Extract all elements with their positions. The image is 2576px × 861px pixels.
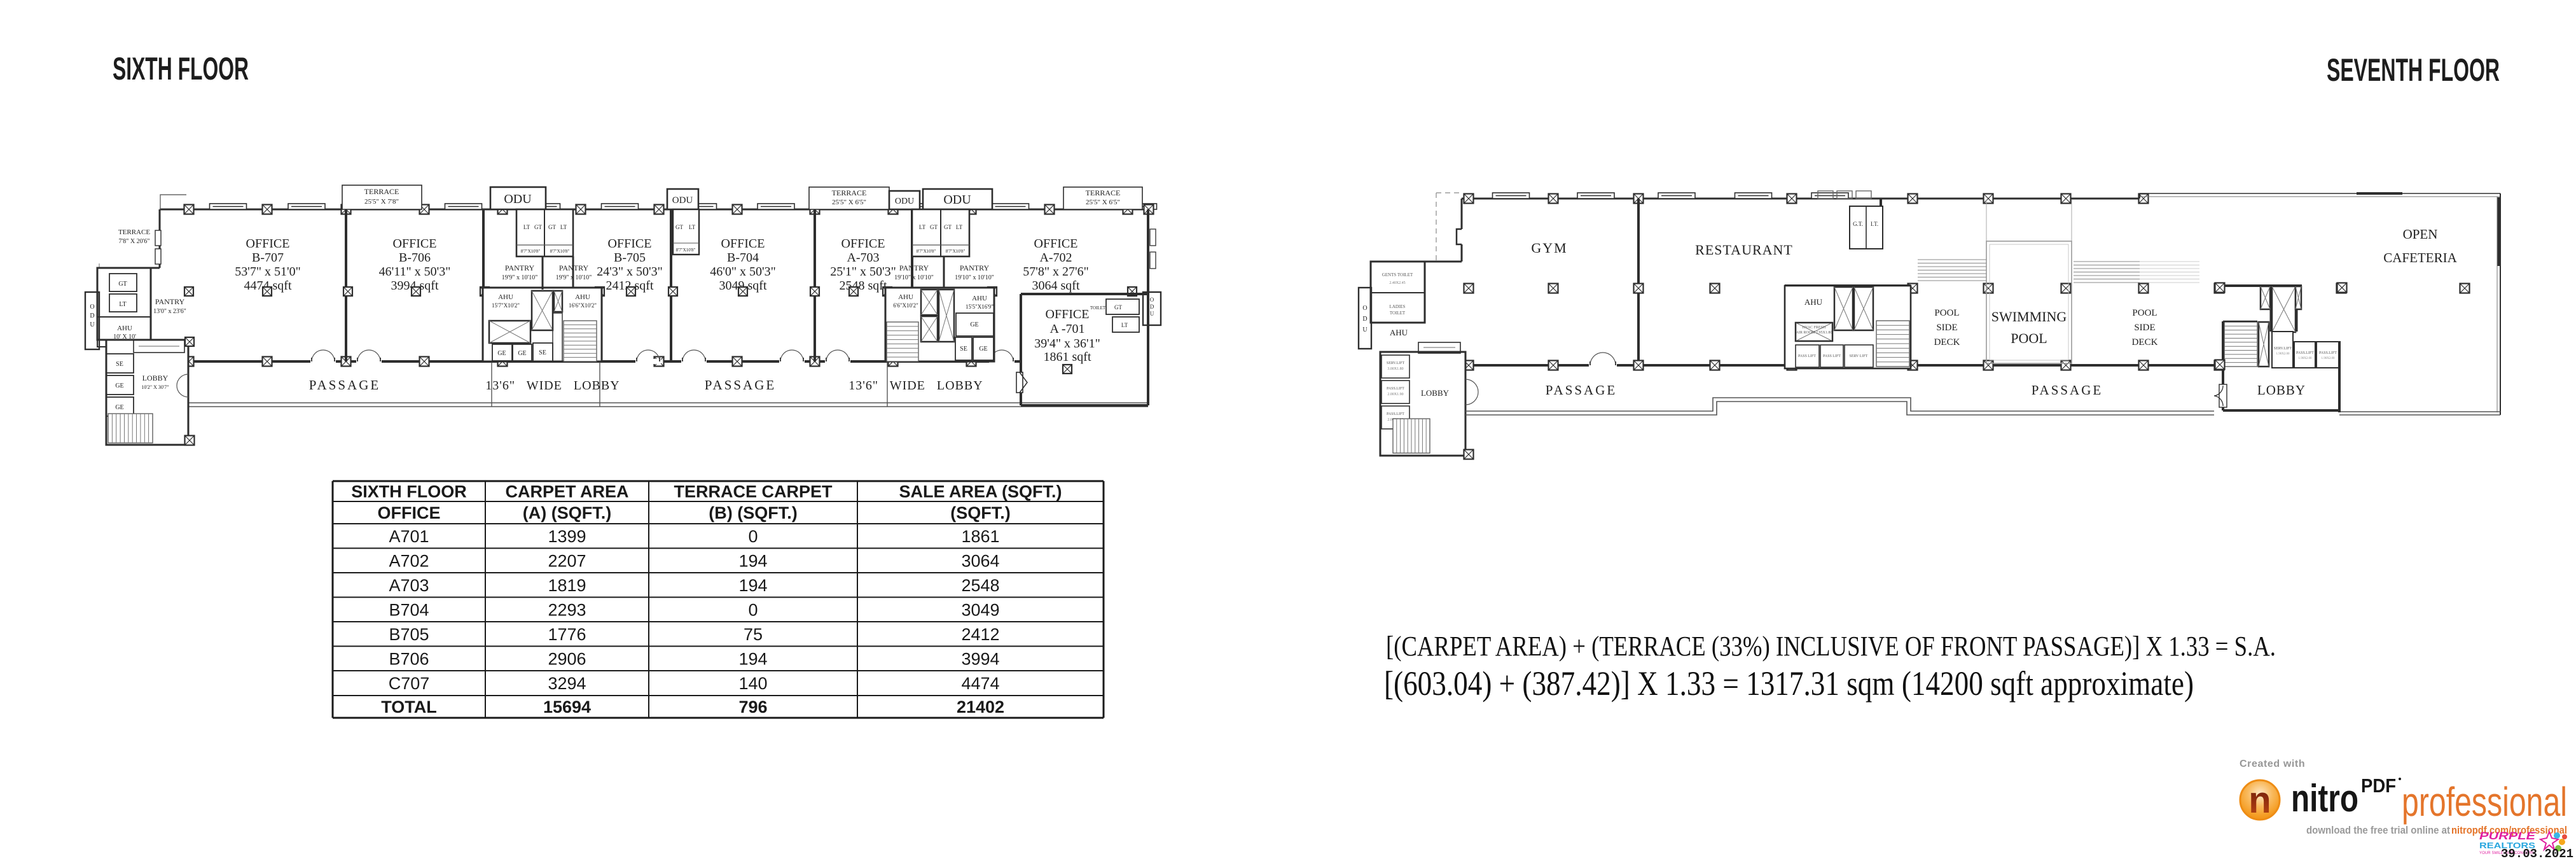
svg-text:LT: LT bbox=[1121, 322, 1128, 328]
svg-text:194: 194 bbox=[738, 576, 767, 595]
svg-text:B-707: B-707 bbox=[252, 251, 284, 265]
svg-text:GE: GE bbox=[979, 346, 987, 353]
svg-text:download the free trial online: download the free trial online at bbox=[2306, 824, 2450, 836]
svg-text:19'9" x 10'10": 19'9" x 10'10" bbox=[556, 274, 592, 281]
svg-text:B-704: B-704 bbox=[727, 251, 759, 265]
svg-text:21402: 21402 bbox=[957, 697, 1004, 717]
svg-text:SERV.LIFT: SERV.LIFT bbox=[1387, 361, 1405, 365]
svg-text:GT: GT bbox=[1114, 304, 1122, 311]
svg-text:AHU: AHU bbox=[898, 293, 913, 301]
svg-text:4474: 4474 bbox=[961, 674, 999, 693]
svg-text:D: D bbox=[1362, 316, 1367, 323]
svg-text:57'8" x 27'6": 57'8" x 27'6" bbox=[1023, 265, 1089, 279]
svg-text:SIDE: SIDE bbox=[2134, 323, 2155, 333]
svg-text:SIDE: SIDE bbox=[1936, 323, 1957, 333]
svg-text:15'5"X16'9": 15'5"X16'9" bbox=[966, 304, 994, 310]
svg-text:CAFETERIA: CAFETERIA bbox=[2383, 250, 2457, 265]
svg-text:POOL: POOL bbox=[2132, 308, 2157, 318]
svg-text:2548: 2548 bbox=[961, 576, 999, 595]
svg-text:SWIMMING: SWIMMING bbox=[1991, 309, 2067, 325]
svg-text:GT: GT bbox=[930, 224, 938, 230]
svg-text:TERRACE: TERRACE bbox=[1086, 188, 1121, 197]
svg-text:RESTAURANT: RESTAURANT bbox=[1695, 242, 1793, 258]
svg-text:POOL: POOL bbox=[2011, 330, 2047, 346]
svg-text:13'6" WIDE LOBBY: 13'6" WIDE LOBBY bbox=[485, 379, 620, 393]
svg-text:2.40X2.45: 2.40X2.45 bbox=[1389, 281, 1405, 285]
svg-text:SIXTH FLOOR: SIXTH FLOOR bbox=[113, 51, 249, 87]
svg-text:PDF: PDF bbox=[2361, 774, 2396, 797]
svg-text:professional: professional bbox=[2402, 779, 2567, 825]
svg-text:GE: GE bbox=[497, 350, 506, 357]
svg-text:A-702: A-702 bbox=[1039, 251, 1072, 265]
svg-text:7'8" X 20'6": 7'8" X 20'6" bbox=[119, 238, 150, 245]
svg-text:PASS LIFT: PASS LIFT bbox=[1798, 354, 1816, 358]
svg-text:140: 140 bbox=[738, 674, 767, 693]
svg-text:TERRACE: TERRACE bbox=[832, 188, 867, 197]
svg-text:C707: C707 bbox=[389, 674, 430, 693]
svg-text:(B) (SQFT.): (B) (SQFT.) bbox=[709, 503, 797, 522]
svg-text:PASS.LIFT: PASS.LIFT bbox=[1387, 387, 1404, 391]
svg-text:2412: 2412 bbox=[961, 625, 999, 644]
svg-text:GT: GT bbox=[944, 224, 952, 230]
svg-text:LT: LT bbox=[689, 224, 696, 230]
svg-text:8'7"X10'8": 8'7"X10'8" bbox=[676, 248, 696, 253]
svg-text:13'0" x 23'6": 13'0" x 23'6" bbox=[153, 308, 186, 315]
svg-text:A702: A702 bbox=[389, 551, 429, 570]
svg-text:GYM: GYM bbox=[1531, 240, 1567, 256]
svg-text:OFFICE: OFFICE bbox=[393, 237, 437, 251]
svg-text:GE: GE bbox=[970, 321, 978, 328]
svg-text:15'7"X10'2": 15'7"X10'2" bbox=[492, 302, 520, 309]
svg-text:53'7" x 51'0": 53'7" x 51'0" bbox=[235, 265, 301, 279]
svg-text:LT: LT bbox=[919, 224, 926, 230]
svg-text:AHU: AHU bbox=[1390, 328, 1408, 337]
svg-text:ODU: ODU bbox=[895, 197, 914, 206]
svg-text:PASS.LIFT: PASS.LIFT bbox=[2319, 351, 2337, 355]
svg-text:0: 0 bbox=[748, 600, 758, 619]
svg-text:SE: SE bbox=[116, 361, 123, 368]
svg-text:GE: GE bbox=[518, 350, 526, 357]
svg-text:nitro: nitro bbox=[2291, 777, 2358, 820]
svg-text:8'7"X10'8": 8'7"X10'8" bbox=[917, 249, 936, 254]
svg-text:HVAC FRESH: HVAC FRESH bbox=[1803, 326, 1826, 330]
svg-text:75: 75 bbox=[744, 625, 763, 644]
svg-text:19'10" x 10'10": 19'10" x 10'10" bbox=[955, 274, 994, 281]
svg-text:U: U bbox=[1362, 326, 1368, 333]
svg-text:PANTRY: PANTRY bbox=[505, 263, 535, 272]
svg-text:GE: GE bbox=[115, 404, 123, 411]
svg-text:PASS.LIFT: PASS.LIFT bbox=[2296, 351, 2314, 355]
svg-text:O: O bbox=[1150, 297, 1154, 303]
svg-text:8'7"X10'8": 8'7"X10'8" bbox=[946, 249, 966, 254]
svg-text:[(603.04) + (387.42)] X 1.33 =: [(603.04) + (387.42)] X 1.33 = 1317.31 s… bbox=[1384, 664, 2194, 703]
svg-text:AIR ROOM 2.95X1.80: AIR ROOM 2.95X1.80 bbox=[1796, 331, 1832, 335]
svg-text:25'5" X 6'5": 25'5" X 6'5" bbox=[832, 199, 866, 206]
svg-text:2548 sqft: 2548 sqft bbox=[840, 279, 887, 293]
svg-text:(A) (SQFT.): (A) (SQFT.) bbox=[523, 503, 611, 522]
svg-text:ODU: ODU bbox=[943, 193, 971, 207]
svg-text:B706: B706 bbox=[389, 649, 429, 668]
svg-text:46'0" x 50'3": 46'0" x 50'3" bbox=[710, 265, 776, 279]
svg-text:A701: A701 bbox=[389, 527, 429, 546]
svg-text:PASSAGE: PASSAGE bbox=[705, 377, 776, 393]
svg-text:796: 796 bbox=[738, 697, 767, 717]
svg-text:LT: LT bbox=[119, 301, 126, 308]
svg-text:19'9" x 10'10": 19'9" x 10'10" bbox=[502, 274, 538, 281]
svg-text:194: 194 bbox=[738, 649, 767, 668]
svg-text:G.T.: G.T. bbox=[1853, 221, 1863, 227]
svg-text:25'1" x 50'3": 25'1" x 50'3" bbox=[830, 265, 896, 279]
svg-text:194: 194 bbox=[738, 551, 767, 570]
svg-text:PASSAGE: PASSAGE bbox=[1546, 382, 1617, 398]
svg-text:GE: GE bbox=[115, 382, 123, 389]
svg-text:1399: 1399 bbox=[548, 527, 586, 546]
svg-text:2293: 2293 bbox=[548, 600, 586, 619]
svg-text:6'6"X10'2": 6'6"X10'2" bbox=[893, 302, 918, 309]
svg-text:TOTAL: TOTAL bbox=[381, 697, 437, 717]
svg-text:TOILET: TOILET bbox=[1090, 305, 1106, 311]
svg-text:A703: A703 bbox=[389, 576, 429, 595]
svg-text:1861: 1861 bbox=[961, 527, 999, 546]
svg-text:LADIES: LADIES bbox=[1390, 304, 1406, 309]
svg-text:13'6" WIDE LOBBY: 13'6" WIDE LOBBY bbox=[848, 379, 983, 393]
svg-text:39'4" x 36'1": 39'4" x 36'1" bbox=[1034, 337, 1100, 351]
svg-text:1819: 1819 bbox=[548, 576, 586, 595]
svg-text:TERRACE CARPET: TERRACE CARPET bbox=[674, 482, 833, 501]
svg-text:O: O bbox=[1362, 305, 1367, 312]
svg-text:B705: B705 bbox=[389, 625, 429, 644]
svg-text:2207: 2207 bbox=[548, 551, 586, 570]
svg-text:1.90X2.00: 1.90X2.00 bbox=[2276, 353, 2290, 356]
svg-text:10'2" X 30'7": 10'2" X 30'7" bbox=[141, 384, 169, 390]
svg-text:PANTRY: PANTRY bbox=[155, 297, 185, 306]
svg-text:SALE AREA (SQFT.): SALE AREA (SQFT.) bbox=[899, 482, 1062, 501]
svg-text:SE: SE bbox=[539, 349, 546, 356]
svg-text:2906: 2906 bbox=[548, 649, 586, 668]
svg-text:SERV.LIFT: SERV.LIFT bbox=[2274, 347, 2292, 351]
svg-text:ODU: ODU bbox=[672, 195, 693, 206]
svg-text:TOILET: TOILET bbox=[1390, 311, 1406, 316]
svg-text:I.T.: I.T. bbox=[1871, 221, 1878, 227]
svg-text:SERV LIFT: SERV LIFT bbox=[1850, 354, 1868, 358]
svg-text:1.90X2.00: 1.90X2.00 bbox=[2321, 357, 2335, 360]
svg-text:A-703: A-703 bbox=[847, 251, 879, 265]
svg-text:POOL: POOL bbox=[1934, 308, 1959, 318]
svg-text:OFFICE: OFFICE bbox=[1046, 307, 1090, 321]
svg-text:LT: LT bbox=[523, 224, 530, 230]
svg-text:1776: 1776 bbox=[548, 625, 586, 644]
svg-text:GT: GT bbox=[548, 224, 556, 230]
svg-text:OPEN: OPEN bbox=[2403, 227, 2438, 242]
svg-text:GENTS TOILET: GENTS TOILET bbox=[1382, 272, 1413, 277]
svg-text:ODU: ODU bbox=[504, 192, 532, 206]
svg-text:25'5" X 6'5": 25'5" X 6'5" bbox=[1086, 199, 1120, 206]
svg-text:LOBBY: LOBBY bbox=[142, 374, 169, 382]
svg-text:16'6"X10'2": 16'6"X10'2" bbox=[569, 302, 597, 309]
svg-text:D: D bbox=[1150, 304, 1154, 310]
svg-text:OFFICE: OFFICE bbox=[841, 237, 885, 251]
svg-text:AHU: AHU bbox=[972, 295, 987, 302]
svg-text:LT: LT bbox=[560, 224, 567, 230]
svg-text:3064: 3064 bbox=[961, 551, 999, 570]
svg-text:OFFICE: OFFICE bbox=[721, 237, 765, 251]
svg-text:15694: 15694 bbox=[543, 697, 591, 717]
svg-text:TERRACE: TERRACE bbox=[364, 187, 399, 196]
svg-text:3049: 3049 bbox=[961, 600, 999, 619]
svg-text:U: U bbox=[1150, 311, 1154, 317]
svg-text:SE: SE bbox=[960, 346, 967, 353]
svg-text:D: D bbox=[90, 312, 94, 319]
svg-text:LOBBY: LOBBY bbox=[1421, 388, 1450, 398]
svg-text:PASS.LIFT: PASS.LIFT bbox=[1387, 412, 1404, 416]
svg-text:25'5" X 7'8": 25'5" X 7'8" bbox=[364, 198, 399, 206]
svg-text:LT: LT bbox=[956, 224, 963, 230]
svg-text:PASS LIFT: PASS LIFT bbox=[1823, 354, 1841, 358]
svg-text:OFFICE: OFFICE bbox=[608, 237, 652, 251]
svg-text:PANTRY: PANTRY bbox=[559, 263, 589, 272]
svg-text:DECK: DECK bbox=[2132, 337, 2158, 347]
svg-text:PANTRY: PANTRY bbox=[960, 263, 990, 272]
svg-text:PASSAGE: PASSAGE bbox=[2032, 382, 2103, 398]
svg-text:0: 0 bbox=[748, 527, 758, 546]
svg-text:1861 sqft: 1861 sqft bbox=[1044, 350, 1091, 364]
svg-text:AHU: AHU bbox=[575, 293, 590, 301]
svg-text:GT: GT bbox=[118, 281, 127, 288]
svg-text:1.90X2.00: 1.90X2.00 bbox=[2298, 357, 2312, 360]
svg-text:TERRACE: TERRACE bbox=[118, 228, 150, 236]
svg-text:B-705: B-705 bbox=[614, 251, 646, 265]
svg-text:24'3" x 50'3": 24'3" x 50'3" bbox=[597, 265, 663, 279]
svg-text:U: U bbox=[90, 321, 95, 328]
svg-text:[(CARPET AREA) + (TERRACE (33%: [(CARPET AREA) + (TERRACE (33%) INCLUSIV… bbox=[1386, 631, 2276, 662]
svg-text:OFFICE: OFFICE bbox=[378, 503, 441, 522]
svg-text:2.00X1.90: 2.00X1.90 bbox=[1387, 393, 1403, 396]
svg-text:PANTRY: PANTRY bbox=[899, 263, 929, 272]
svg-text:AHU: AHU bbox=[1804, 297, 1823, 307]
svg-text:GT: GT bbox=[534, 224, 542, 230]
svg-text:3.00X1.80: 3.00X1.80 bbox=[1387, 367, 1403, 371]
svg-text:SIXTH FLOOR: SIXTH FLOOR bbox=[351, 482, 467, 501]
svg-text:SEVENTH FLOOR: SEVENTH FLOOR bbox=[2327, 52, 2500, 88]
svg-text:AHU: AHU bbox=[498, 293, 513, 301]
svg-text:19'10" x 10'10": 19'10" x 10'10" bbox=[894, 274, 934, 281]
svg-text:PASSAGE: PASSAGE bbox=[309, 377, 380, 393]
svg-text:(SQFT.): (SQFT.) bbox=[950, 503, 1011, 522]
svg-text:DECK: DECK bbox=[1934, 337, 1960, 347]
svg-text:n: n bbox=[2248, 780, 2271, 821]
svg-text:3064 sqft: 3064 sqft bbox=[1032, 279, 1080, 293]
svg-text:8'7"X10'8": 8'7"X10'8" bbox=[521, 249, 541, 254]
svg-text:CARPET AREA: CARPET AREA bbox=[505, 482, 628, 501]
svg-text:O: O bbox=[90, 304, 94, 311]
svg-text:OFFICE: OFFICE bbox=[1034, 237, 1078, 251]
svg-text:3294: 3294 bbox=[548, 674, 586, 693]
svg-text:B-706: B-706 bbox=[399, 251, 431, 265]
svg-text:LOBBY: LOBBY bbox=[2257, 382, 2306, 398]
svg-text:GT: GT bbox=[675, 224, 683, 230]
svg-text:AHU: AHU bbox=[117, 325, 132, 332]
svg-text:A -701: A -701 bbox=[1050, 322, 1085, 336]
svg-text:B704: B704 bbox=[389, 600, 429, 619]
svg-text:3994: 3994 bbox=[961, 649, 999, 668]
svg-text:OFFICE: OFFICE bbox=[246, 237, 290, 251]
svg-text:8'7"X10'8": 8'7"X10'8" bbox=[550, 249, 570, 254]
svg-text:46'11" x 50'3": 46'11" x 50'3" bbox=[379, 265, 451, 279]
